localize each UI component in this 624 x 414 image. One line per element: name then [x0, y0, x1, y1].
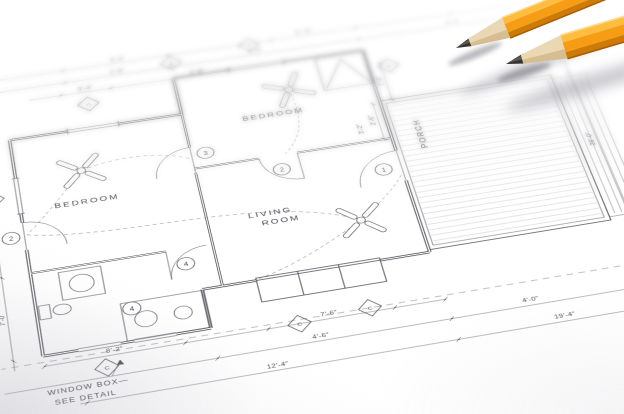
toilet-tank	[38, 304, 51, 319]
electrical-dashed-curves	[11, 77, 428, 314]
window-tag-diamond: C	[286, 313, 314, 334]
window-tag-diamond: C	[93, 357, 120, 378]
dimension-label: 19'-4"	[554, 312, 577, 321]
windows	[0, 59, 355, 359]
dimension-label: 2'-6"	[368, 114, 378, 125]
dimension-lines	[0, 0, 624, 414]
dimension-label: 12'-4"	[266, 361, 289, 370]
window-tag-diamond: B	[376, 57, 401, 73]
window-tag-diamond: B	[159, 55, 183, 71]
dimension-label: 3'-2"	[356, 123, 366, 134]
porch-steps	[552, 73, 624, 217]
window-tag-letter: A	[86, 102, 92, 107]
water-heater-circle	[68, 272, 96, 293]
window-tag-diamond: D	[0, 191, 5, 210]
door-number-circle: 2	[1, 231, 20, 246]
window-tag-letter: C	[104, 365, 110, 372]
door-number-circle: 3	[196, 146, 215, 160]
window-tag-letter: A	[246, 43, 252, 48]
dimension-labels: 9'-6" 11'-8" 2'-8" 3'-0" 5'-4" 3'-4" 2'-…	[0, 0, 624, 414]
door-numbers: 3 2 1 4 2 4	[0, 121, 424, 334]
window-tag-letter: C	[297, 322, 304, 328]
floor-plan-sheet: BEDROOM BEDROOM LIVING ROOM PORCH WINDOW…	[0, 0, 624, 414]
porch-outline	[380, 75, 611, 250]
ceiling-fan-icon	[55, 151, 109, 190]
room-label-bedroom-2: BEDROOM	[241, 106, 305, 122]
room-label-bedroom-1: BEDROOM	[54, 193, 120, 211]
dimension-label: 4'-0"	[522, 296, 540, 304]
toilet-bowl	[52, 303, 72, 316]
ceiling-fan-icon	[258, 69, 319, 110]
sink-2	[173, 305, 194, 321]
floor-plan-drawing: BEDROOM BEDROOM LIVING ROOM PORCH WINDOW…	[0, 0, 624, 414]
door-number-circle: 2	[272, 162, 292, 176]
window-tag-diamond: C	[356, 298, 384, 318]
dimension-label: 3'-0"	[247, 48, 263, 54]
door-number-circle: 1	[374, 163, 394, 177]
porch-deck-hatch	[388, 82, 601, 241]
window-tag-letter: C	[367, 306, 374, 312]
window-tag-letter: B	[169, 61, 175, 66]
overhang-dashed-line	[0, 258, 624, 374]
water-heater	[58, 266, 105, 300]
vanity	[120, 290, 211, 341]
ceiling-fan-icon	[334, 201, 388, 239]
dimension-label: 7'-6"	[320, 310, 338, 318]
dimension-ticks	[0, 0, 624, 414]
window-tag-diamond: A	[76, 95, 100, 112]
window-tag-letter: B	[386, 64, 392, 69]
window-seat	[256, 258, 387, 302]
blueprint-photo: BEDROOM BEDROOM LIVING ROOM PORCH WINDOW…	[0, 0, 624, 414]
